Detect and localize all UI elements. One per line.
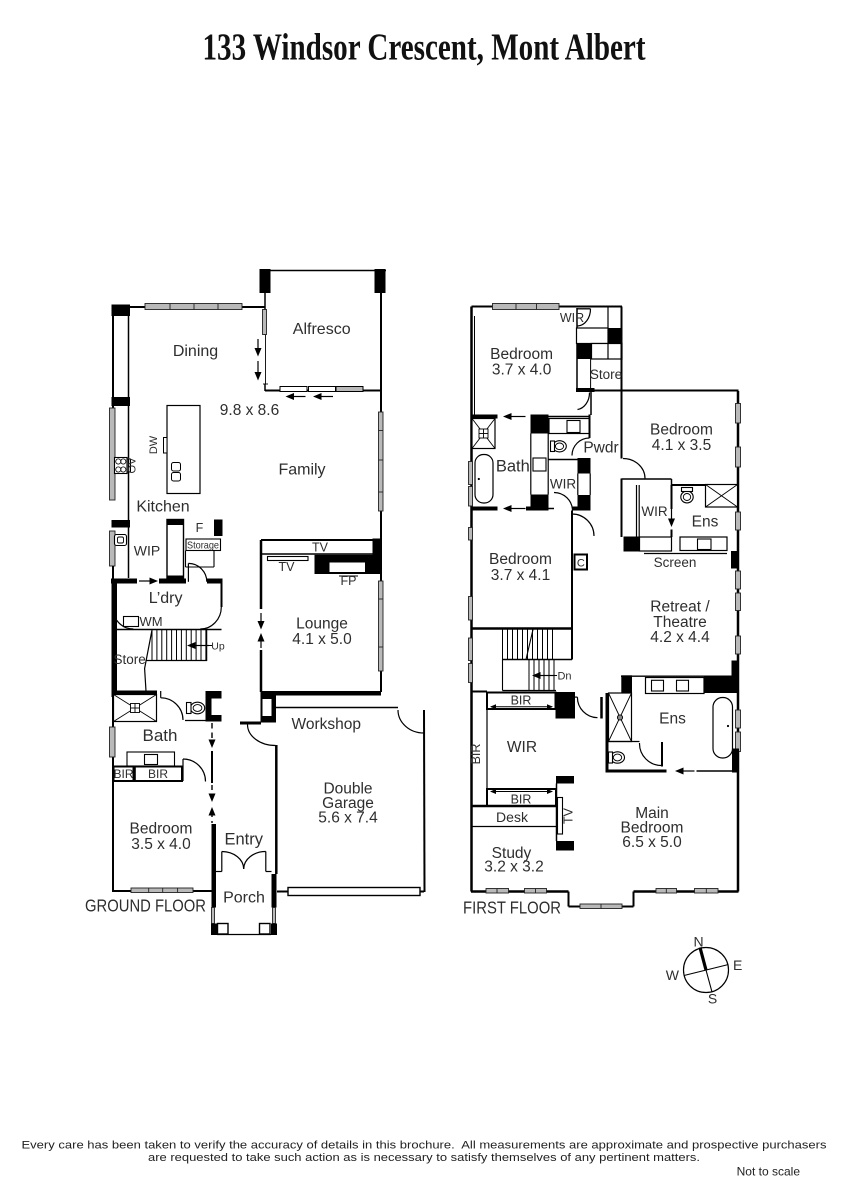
svg-text:BIR: BIR [511, 694, 532, 708]
svg-text:Ens: Ens [692, 514, 719, 531]
svg-text:BIR: BIR [113, 767, 133, 781]
svg-text:WIR: WIR [550, 477, 576, 492]
svg-text:N: N [693, 934, 703, 950]
svg-text:are requested to take such act: are requested to take such action as is … [148, 1152, 700, 1164]
svg-text:S: S [708, 991, 717, 1007]
svg-text:E: E [733, 957, 742, 973]
svg-text:Ens: Ens [659, 711, 686, 728]
svg-text:TV: TV [312, 541, 329, 555]
svg-text:Not to scale: Not to scale [737, 1165, 801, 1179]
svg-text:BIR: BIR [511, 793, 532, 807]
svg-text:TV: TV [562, 807, 576, 824]
svg-text:3.5 x 4.0: 3.5 x 4.0 [131, 836, 191, 853]
svg-text:5.6 x 7.4: 5.6 x 7.4 [318, 810, 378, 827]
svg-text:Lounge: Lounge [296, 616, 348, 633]
svg-text:WIR: WIR [507, 739, 537, 756]
svg-text:Bath: Bath [143, 726, 178, 745]
svg-text:Bedroom: Bedroom [650, 422, 713, 439]
svg-text:3.7 x 4.0: 3.7 x 4.0 [492, 362, 552, 379]
svg-text:Alfresco: Alfresco [293, 321, 351, 338]
svg-text:L’dry: L’dry [149, 590, 183, 607]
svg-text:W: W [666, 967, 680, 983]
svg-text:GROUND FLOOR: GROUND FLOOR [85, 896, 206, 916]
svg-text:Bath: Bath [496, 458, 530, 476]
svg-text:WM: WM [139, 614, 162, 629]
svg-text:3.2 x 3.2: 3.2 x 3.2 [484, 859, 543, 876]
svg-text:Pwdr: Pwdr [583, 440, 618, 457]
svg-text:Every care has been taken to v: Every care has been taken to verify the … [22, 1140, 827, 1152]
svg-text:Dining: Dining [173, 343, 218, 360]
svg-text:Bedroom: Bedroom [489, 551, 552, 568]
svg-text:Dn: Dn [557, 671, 571, 683]
svg-text:BIR: BIR [469, 744, 483, 765]
svg-text:FP: FP [341, 574, 357, 588]
svg-text:Entry: Entry [224, 831, 263, 849]
svg-text:133 Windsor Crescent, Mont Alb: 133 Windsor Crescent, Mont Albert [203, 27, 646, 69]
svg-text:WIP: WIP [134, 543, 160, 559]
svg-text:Workshop: Workshop [292, 716, 362, 733]
svg-text:WIR: WIR [560, 311, 584, 325]
svg-text:Bedroom: Bedroom [490, 346, 553, 363]
svg-text:Up: Up [211, 641, 225, 653]
svg-text:4.1 x 5.0: 4.1 x 5.0 [292, 631, 352, 648]
svg-text:TV: TV [279, 560, 296, 574]
svg-text:Retreat /: Retreat / [650, 599, 710, 616]
svg-text:Bedroom: Bedroom [130, 821, 193, 838]
svg-text:Store: Store [590, 367, 622, 382]
svg-text:3.7 x 4.1: 3.7 x 4.1 [491, 567, 550, 584]
svg-text:Porch: Porch [223, 890, 265, 907]
svg-text:F: F [196, 521, 204, 535]
svg-text:9.8 x 8.6: 9.8 x 8.6 [220, 402, 279, 419]
svg-text:WIR: WIR [641, 504, 667, 519]
svg-text:Family: Family [278, 462, 325, 479]
svg-text:OV: OV [127, 457, 139, 474]
svg-text:Storage: Storage [187, 539, 219, 551]
svg-text:FIRST FLOOR: FIRST FLOOR [463, 898, 561, 918]
svg-text:DW: DW [148, 435, 160, 454]
svg-text:Screen: Screen [654, 555, 697, 570]
svg-text:Kitchen: Kitchen [136, 499, 189, 516]
svg-text:Desk: Desk [496, 809, 529, 825]
svg-text:6.5 x 5.0: 6.5 x 5.0 [622, 834, 682, 851]
svg-text:Store: Store [114, 652, 146, 667]
svg-text:C: C [577, 558, 585, 570]
svg-text:4.2 x 4.4: 4.2 x 4.4 [650, 629, 710, 646]
svg-text:BIR: BIR [148, 767, 168, 781]
svg-text:4.1 x 3.5: 4.1 x 3.5 [652, 437, 711, 454]
